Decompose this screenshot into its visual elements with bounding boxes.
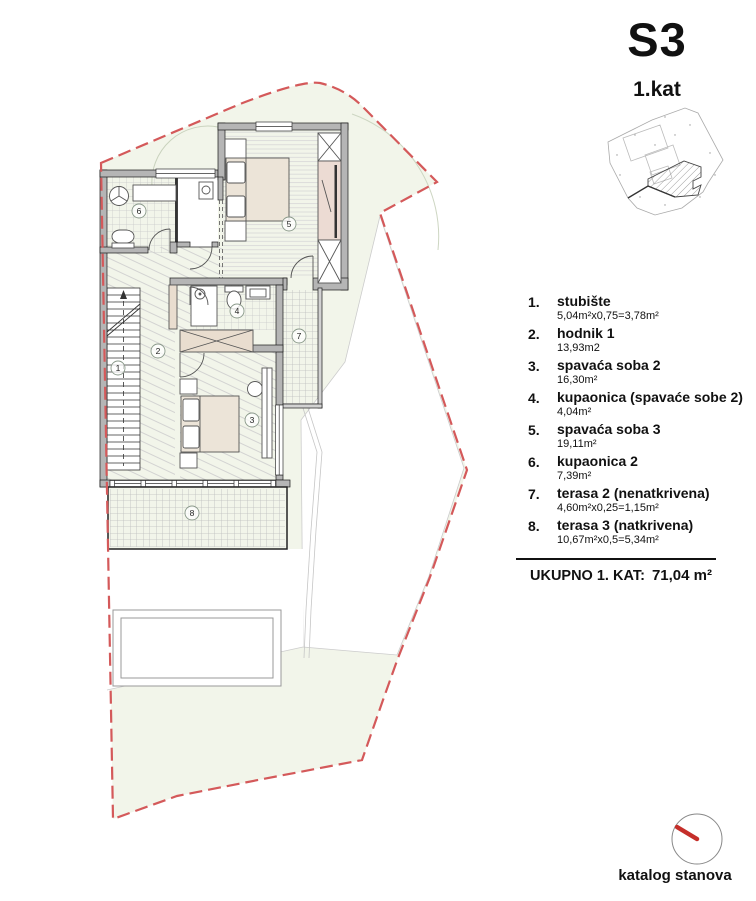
total-label: UKUPNO 1. KAT: [530,568,645,584]
page-subtitle: 1.kat [597,78,717,102]
legend-room-name: kupaonica (spavaće sobe 2) [557,390,743,406]
legend-number: 2. [528,326,557,342]
pool-outline [113,610,281,686]
legend-number: 8. [528,518,557,534]
toilet-icon [112,230,134,248]
legend-item: 8.terasa 3 (natkrivena) 10,67m²x0,5=5,34… [528,518,743,547]
svg-text:3: 3 [250,415,255,425]
room-label-1: 1 [111,361,125,375]
legend-room-name: stubište [557,294,611,310]
room-legend: 1.stubište 5,04m²x0,75=3,78m² 2.hodnik 1… [528,294,743,550]
room-label-7: 7 [292,329,306,343]
terrace2-floor [283,290,318,404]
legend-room-name: hodnik 1 [557,326,615,342]
svg-text:7: 7 [297,331,302,341]
key-map-lot [608,108,723,215]
legend-room-area: 4,60m²x0,25=1,15m² [557,502,743,515]
legend-item: 4.kupaonica (spavaće sobe 2) 4,04m² [528,390,743,419]
svg-text:1: 1 [116,363,121,373]
sink-icon [199,182,213,199]
legend-room-name: terasa 2 (nenatkrivena) [557,486,710,502]
wardrobe [318,133,341,283]
svg-text:4: 4 [235,306,240,316]
bathroom-counter [133,185,176,201]
legend-number: 1. [528,294,557,310]
legend-room-name: spavaća soba 3 [557,422,661,438]
total-row: UKUPNO 1. KAT: 71,04 m² [516,567,722,584]
page-title: S3 [597,12,717,67]
legend-item: 3.spavaća soba 2 16,30m² [528,358,743,387]
legend-number: 5. [528,422,557,438]
shower-icon [191,286,217,326]
legend-room-area: 19,11m² [557,438,743,451]
legend-room-name: spavaća soba 2 [557,358,661,374]
site-key-map [605,105,755,240]
legend-number: 6. [528,454,557,470]
floor-plan-drawing: 1 2 3 4 5 6 7 8 [0,0,500,901]
legend-room-area: 16,30m² [557,374,743,387]
legend-item: 5.spavaća soba 3 19,11m² [528,422,743,451]
room-label-4: 4 [230,304,244,318]
washing-machine-icon [110,187,129,206]
legend-room-area: 5,04m²x0,75=3,78m² [557,310,743,323]
legend-room-name: kupaonica 2 [557,454,638,470]
wardrobe-strip [262,368,272,458]
svg-text:6: 6 [137,206,142,216]
room-label-5: 5 [282,217,296,231]
room-label-6: 6 [132,204,146,218]
legend-divider [516,558,716,560]
legend-room-area: 4,04m² [557,406,743,419]
catalog-page: 1 2 3 4 5 6 7 8 S3 1.kat [0,0,756,901]
legend-room-name: terasa 3 (natkrivena) [557,518,693,534]
key-map-highlighted-unit [648,161,701,197]
svg-text:8: 8 [190,508,195,518]
svg-text:2: 2 [156,346,161,356]
legend-item: 6.kupaonica 2 7,39m² [528,454,743,483]
legend-room-area: 7,39m² [557,470,743,483]
legend-item: 7.terasa 2 (nenatkrivena) 4,60m²x0,25=1,… [528,486,743,515]
room-label-8: 8 [185,506,199,520]
legend-number: 3. [528,358,557,374]
legend-room-area: 13,93m2 [557,342,743,355]
legend-number: 7. [528,486,557,502]
sink-icon [246,286,270,299]
staircase [107,288,140,470]
total-value: 71,04 m² [652,567,712,584]
legend-room-area: 10,67m²x0,5=5,34m² [557,534,743,547]
svg-text:5: 5 [287,219,292,229]
compass-label: katalog stanova [595,867,755,884]
legend-item: 2.hodnik 1 13,93m2 [528,326,743,355]
room-label-2: 2 [151,344,165,358]
stool-icon [248,382,263,397]
compass-icon [657,806,739,868]
room-label-3: 3 [245,413,259,427]
legend-number: 4. [528,390,557,406]
legend-item: 1.stubište 5,04m²x0,75=3,78m² [528,294,743,323]
